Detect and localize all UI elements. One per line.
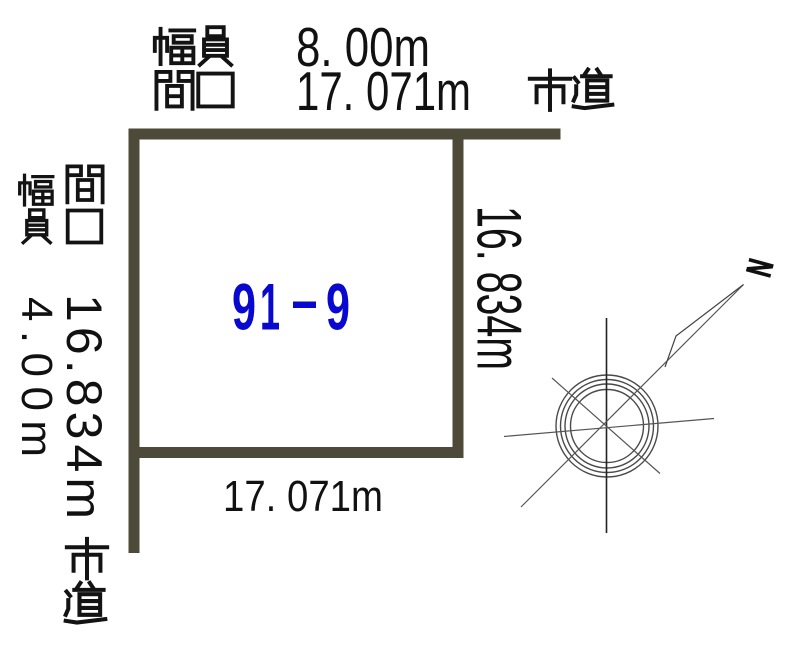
svg-text:17. 071m: 17. 071m bbox=[296, 60, 471, 122]
svg-text:9: 9 bbox=[326, 270, 350, 344]
svg-text:9: 9 bbox=[232, 270, 256, 344]
svg-text:16.834m: 16.834m bbox=[56, 294, 112, 519]
svg-text:1: 1 bbox=[260, 270, 280, 344]
svg-text:16. 834m: 16. 834m bbox=[464, 206, 534, 370]
svg-text:4.00m: 4.00m bbox=[12, 297, 61, 457]
svg-text:17. 071m: 17. 071m bbox=[223, 472, 383, 521]
